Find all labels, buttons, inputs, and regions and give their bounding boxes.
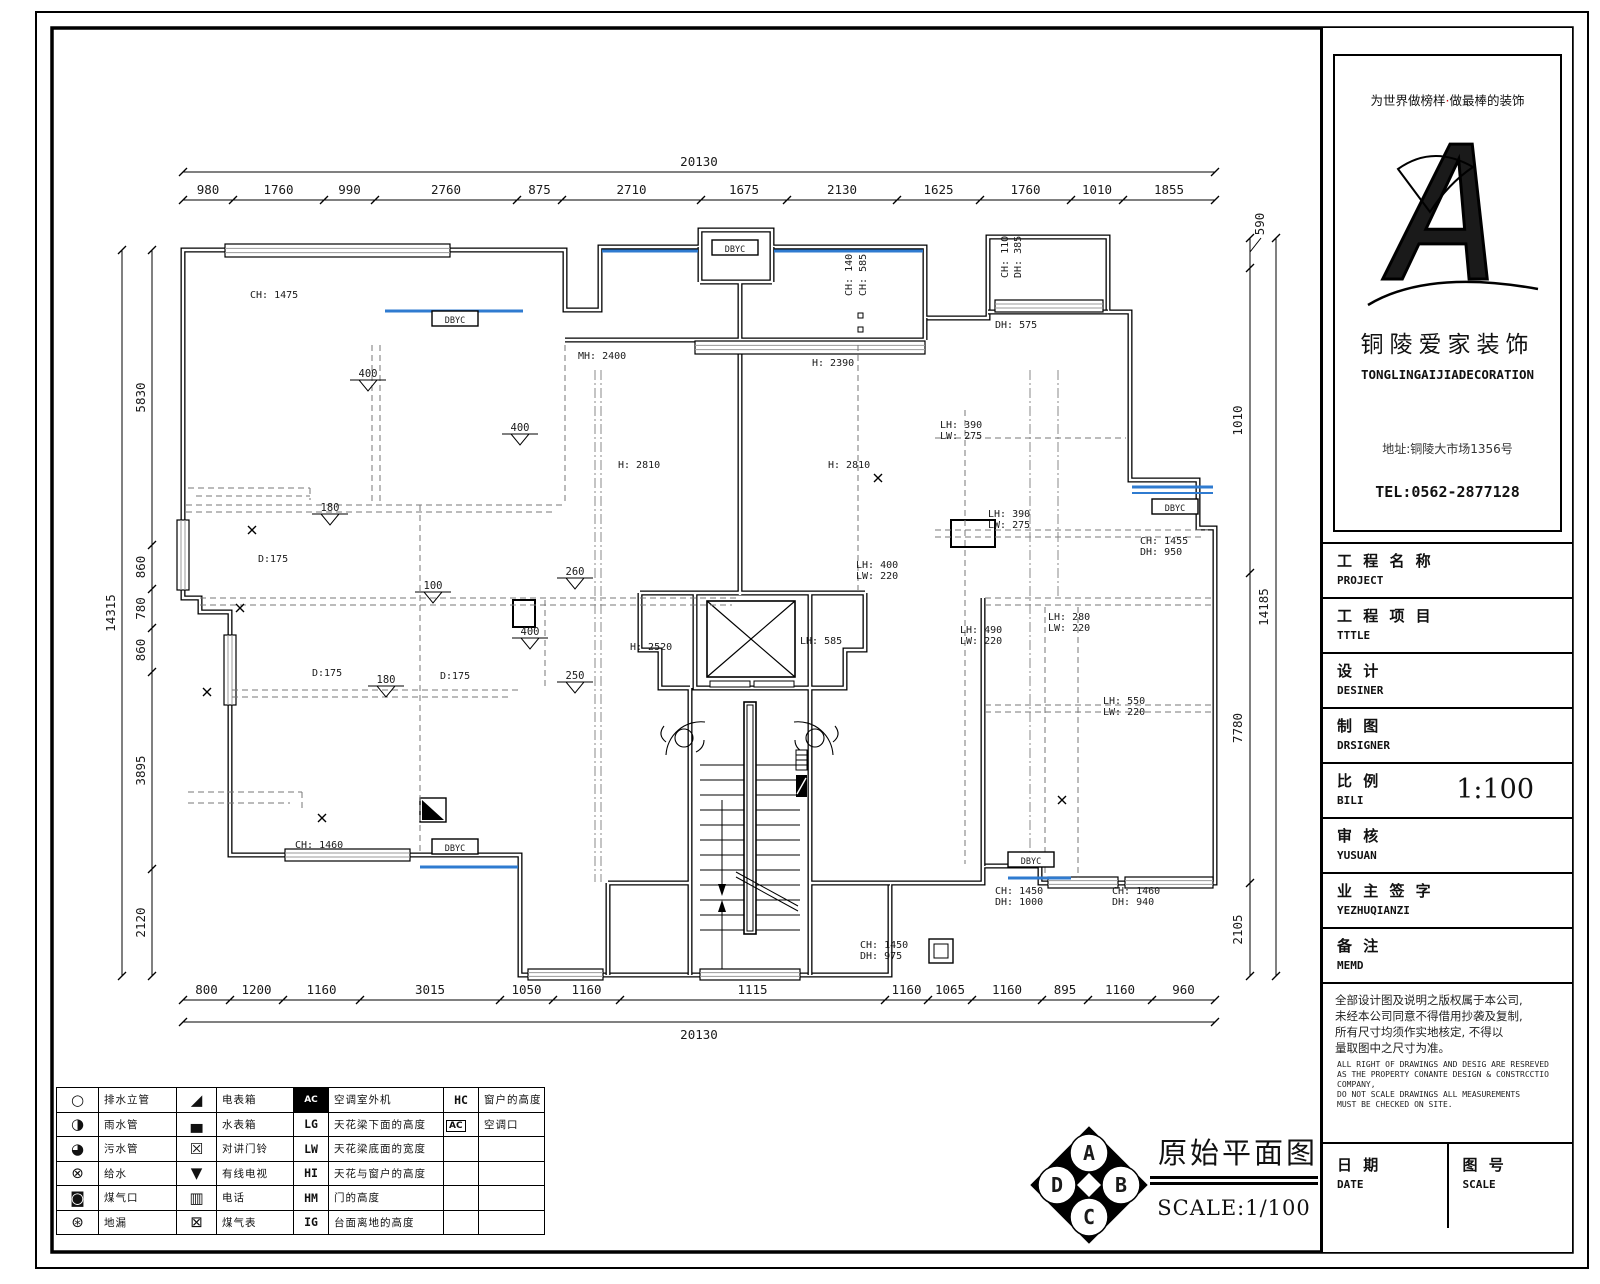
window-symbol: [224, 635, 236, 705]
drawing-scale: SCALE:1/100: [1146, 1196, 1322, 1220]
dim-value: 20130: [680, 154, 718, 169]
title-block-rows: 工 程 名 称 PROJECT 工 程 项 目 TTTLE 设 计 DESINE…: [1323, 542, 1572, 982]
legend-label: 窗户的高度: [479, 1088, 545, 1113]
field-project-name: 工 程 名 称 PROJECT: [1323, 542, 1572, 597]
dim-value: 1760: [1010, 182, 1040, 197]
field-label-en: DATE: [1337, 1178, 1447, 1191]
beam-label: LW: 275: [940, 431, 982, 442]
field-label-cn: 比 例: [1337, 770, 1572, 791]
beam-label: LH: 280: [1048, 612, 1090, 623]
dim-value: 860: [133, 639, 148, 662]
dim-value: 875: [528, 182, 551, 197]
field-label-cn: 图 号: [1463, 1154, 1573, 1175]
company-name-cn: 铜陵爱家装饰: [1335, 325, 1560, 359]
dim-value: 3895: [133, 755, 148, 785]
legend-label: 天花梁底面的宽度: [329, 1137, 444, 1162]
dim-leader: [1250, 238, 1261, 252]
legend-symbol: HI: [294, 1161, 329, 1186]
legend-label: 天花与窗户的高度: [329, 1161, 444, 1186]
beam-label: LH: 400: [856, 560, 898, 571]
note-line-en: ALL RIGHT OF DRAWINGS AND DESIG ARE RESR…: [1337, 1060, 1568, 1070]
dim-value: 1065: [935, 982, 965, 997]
staircase: [700, 702, 800, 973]
legend-label: 门的高度: [329, 1186, 444, 1211]
company-logo-icon: A: [1338, 109, 1558, 319]
window-symbol: [700, 969, 800, 980]
legend-label: [479, 1186, 545, 1211]
dim-value: 1760: [263, 182, 293, 197]
window-symbol: [528, 969, 603, 980]
rotated-label: CH: 585: [858, 254, 869, 296]
level-value: 100: [424, 580, 443, 592]
dim-value: 1855: [1154, 182, 1184, 197]
legend-grid: ○排水立管◢电表箱AC空调室外机HC窗户的高度◑雨水管▄水表箱LG天花梁下面的高…: [56, 1087, 545, 1235]
legend-symbol: ◕: [57, 1137, 99, 1162]
dim-value: 1050: [511, 982, 541, 997]
title-underline: [1150, 1176, 1318, 1185]
company-header: 为世界做榜样·做最棒的装饰 A 铜陵爱家装饰 TONGLINGAIJIADECO…: [1333, 54, 1562, 532]
date-sheet-row: 日 期 DATE 图 号 SCALE: [1323, 1142, 1572, 1228]
beam-label: LW: 220: [1103, 707, 1145, 718]
legend-label: 空调室外机: [329, 1088, 444, 1113]
window-label: CH: 1460: [1112, 886, 1160, 897]
note-line-cn: 全部设计图及说明之版权属于本公司,: [1335, 992, 1568, 1008]
legend-symbol: [444, 1186, 479, 1211]
legend-label: 天花梁下面的高度: [329, 1112, 444, 1137]
field-label-cn: 审 核: [1337, 825, 1572, 846]
window-tag-text: DBYC: [445, 316, 465, 326]
rotated-label: CH: 140: [844, 254, 855, 296]
field-label-en: MEMD: [1337, 959, 1572, 972]
rotated-label: DH: 385: [1013, 236, 1024, 278]
legend-label: 煤气口: [99, 1186, 177, 1211]
dim-value: 1160: [571, 982, 601, 997]
room-label: CH: 1475: [250, 290, 298, 301]
field-label-en: YEZHUQIANZI: [1337, 904, 1572, 917]
legend-symbol: ○: [57, 1088, 99, 1113]
note-line-cn: 量取图中之尺寸为准。: [1335, 1040, 1568, 1056]
dim-value: 14315: [103, 594, 118, 632]
note-line-cn: 所有尺寸均须作实地核定, 不得以: [1335, 1024, 1568, 1040]
floor-plan: 400400180100400260250180 DBYCDBYCDBYCDBY…: [177, 230, 1261, 980]
room-label: H: 2520: [630, 642, 672, 653]
drawing-title: 原始平面图: [1156, 1130, 1320, 1172]
legend-symbol: ▼: [177, 1161, 217, 1186]
dim-chain: 583086078086038952120: [133, 246, 156, 980]
rotated-label: CH: 110: [1000, 236, 1011, 278]
orientation-compass: A B C D: [1022, 1118, 1156, 1252]
field-label-en: YUSUAN: [1337, 849, 1572, 862]
window-label: DH: 940: [1112, 897, 1154, 908]
company-phone: TEL:0562-2877128: [1335, 483, 1560, 501]
window-tag-text: DBYC: [1165, 504, 1185, 514]
legend-symbol: ⊛: [57, 1210, 99, 1235]
field-sheet-number: 图 号 SCALE: [1447, 1144, 1573, 1228]
level-value: 400: [359, 368, 378, 380]
dim-value: 2120: [133, 907, 148, 937]
dim-chain: 8001200116030151050116011151160106511608…: [179, 982, 1219, 1004]
field-scale-ratio: 比 例 BILI 1:100: [1323, 762, 1572, 817]
window-label: CH: 1450: [860, 940, 908, 951]
level-triangle-icon: [321, 514, 339, 525]
legend-symbol: [444, 1161, 479, 1186]
room-label: D:175: [258, 554, 288, 565]
dim-value: 590: [1252, 213, 1267, 236]
level-value: 180: [377, 674, 396, 686]
level-triangle-icon: [377, 686, 395, 697]
dim-value: 3015: [415, 982, 445, 997]
legend-symbol: [444, 1137, 479, 1162]
dim-value: 800: [195, 982, 218, 997]
dim-chain: 9801760990276087527101675213016251760101…: [179, 182, 1219, 204]
dim-value: 2130: [827, 182, 857, 197]
legend-symbol: AC: [444, 1112, 479, 1137]
dim-value: 780: [133, 597, 148, 620]
notes-chinese: 全部设计图及说明之版权属于本公司,未经本公司同意不得借用抄袭及复制,所有尺寸均须…: [1335, 992, 1568, 1056]
slogan-left: 为世界做榜样: [1370, 93, 1445, 108]
beam-label: LH: 390: [988, 509, 1030, 520]
legend-symbol: LW: [294, 1137, 329, 1162]
level-value: 400: [511, 422, 530, 434]
dim-value: 7780: [1230, 713, 1245, 743]
note-line-en: MUST BE CHECKED ON SITE.: [1337, 1100, 1568, 1110]
note-line-cn: 未经本公司同意不得借用抄袭及复制,: [1335, 1008, 1568, 1024]
compass-letter-a: A: [1083, 1141, 1095, 1165]
legend-label: 有线电视: [217, 1161, 294, 1186]
column: [513, 600, 535, 627]
legend-label: 雨水管: [99, 1112, 177, 1137]
field-label-cn: 设 计: [1337, 660, 1572, 681]
legend-label: 给水: [99, 1161, 177, 1186]
level-triangle-icon: [521, 638, 539, 649]
field-auditor: 审 核 YUSUAN: [1323, 817, 1572, 872]
legend-symbol: ◙: [57, 1186, 99, 1211]
beam-label: LH: 585: [800, 636, 842, 647]
legend-row: ⊗给水▼有线电视HI天花与窗户的高度: [57, 1161, 545, 1186]
legend-symbol: ◢: [177, 1088, 217, 1113]
legend-label: 台面离地的高度: [329, 1210, 444, 1235]
window-symbol: [225, 244, 450, 257]
legend-row: ◑雨水管▄水表箱LG天花梁下面的高度AC空调口: [57, 1112, 545, 1137]
dim-value: 2760: [431, 182, 461, 197]
company-slogan: 为世界做榜样·做最棒的装饰: [1335, 90, 1560, 109]
room-label: MH: 2400: [578, 351, 626, 362]
legend-label: 排水立管: [99, 1088, 177, 1113]
dim-value: 2105: [1230, 914, 1245, 944]
field-label-cn: 制 图: [1337, 715, 1572, 736]
window-tags: DBYCDBYCDBYCDBYCDBYC: [432, 240, 1198, 867]
company-address: 地址:铜陵大市场1356号: [1335, 440, 1560, 457]
dim-value: 1625: [923, 182, 953, 197]
stair-arrow-down: [718, 884, 726, 896]
field-label-cn: 备 注: [1337, 935, 1572, 956]
beam-label: LW: 220: [960, 636, 1002, 647]
level-value: 250: [566, 670, 585, 682]
elevator-shaft: [707, 601, 795, 687]
legend-row: ⊛地漏⊠煤气表IG台面离地的高度: [57, 1210, 545, 1235]
field-drafter: 制 图 DRSIGNER: [1323, 707, 1572, 762]
copyright-notes: 全部设计图及说明之版权属于本公司,未经本公司同意不得借用抄袭及复制,所有尺寸均须…: [1323, 982, 1572, 1142]
dim-value: 1160: [1105, 982, 1135, 997]
legend-symbol: ◑: [57, 1112, 99, 1137]
window-tag-text: DBYC: [445, 844, 465, 854]
room-label: DH: 575: [995, 320, 1037, 331]
dim-chain: 20130: [179, 154, 1219, 176]
field-project-title: 工 程 项 目 TTTLE: [1323, 597, 1572, 652]
legend-table: ○排水立管◢电表箱AC空调室外机HC窗户的高度◑雨水管▄水表箱LG天花梁下面的高…: [56, 1087, 545, 1235]
level-markers: 400400180100400260250180: [312, 368, 593, 697]
beam-label: LH: 550: [1103, 696, 1145, 707]
legend-symbol: LG: [294, 1112, 329, 1137]
legend-symbol: ▥: [177, 1186, 217, 1211]
room-label: H: 2390: [812, 358, 854, 369]
field-label-en: TTTLE: [1337, 629, 1572, 642]
legend-label: [479, 1210, 545, 1235]
notes-english: ALL RIGHT OF DRAWINGS AND DESIG ARE RESR…: [1335, 1060, 1568, 1110]
beam-label: LW: 275: [988, 520, 1030, 531]
compass-letter-b: B: [1115, 1173, 1127, 1197]
svg-text:A: A: [1382, 109, 1503, 319]
window-label: DH: 950: [1140, 547, 1182, 558]
level-value: 400: [521, 626, 540, 638]
dim-value: 2710: [616, 182, 646, 197]
beam-label: LH: 390: [940, 420, 982, 431]
legend-symbol: IG: [294, 1210, 329, 1235]
field-label-cn: 工 程 项 目: [1337, 605, 1572, 626]
level-triangle-icon: [511, 434, 529, 445]
title-block-panel: 为世界做榜样·做最棒的装饰 A 铜陵爱家装饰 TONGLINGAIJIADECO…: [1320, 28, 1572, 1252]
legend-label: 污水管: [99, 1137, 177, 1162]
drawing-sheet: { "brand": { "slogan_a": "为世界做榜样", "slog…: [0, 0, 1600, 1280]
legend-label: 对讲门铃: [217, 1137, 294, 1162]
legend-row: ○排水立管◢电表箱AC空调室外机HC窗户的高度: [57, 1088, 545, 1113]
legend-symbol: ⊗: [57, 1161, 99, 1186]
dim-value: 20130: [680, 1027, 718, 1042]
legend-symbol: [444, 1210, 479, 1235]
dim-value: 1675: [729, 182, 759, 197]
legend-label: 电话: [217, 1186, 294, 1211]
dim-value: 1160: [306, 982, 336, 997]
field-label-en: DRSIGNER: [1337, 739, 1572, 752]
level-value: 180: [321, 502, 340, 514]
dim-value: 1160: [891, 982, 921, 997]
beam-label: LW: 220: [856, 571, 898, 582]
room-label: H: 2810: [828, 460, 870, 471]
legend-symbol: HM: [294, 1186, 329, 1211]
room-label: D:175: [440, 671, 470, 682]
legend-label: 地漏: [99, 1210, 177, 1235]
dim-value: 1160: [992, 982, 1022, 997]
level-triangle-icon: [566, 682, 584, 693]
legend-symbol: HC: [444, 1088, 479, 1113]
dim-value: 1010: [1082, 182, 1112, 197]
beam-label: LH: 490: [960, 625, 1002, 636]
field-label-cn: 业 主 签 字: [1337, 880, 1572, 901]
window-label: DH: 975: [860, 951, 902, 962]
legend-label: 空调口: [479, 1112, 545, 1137]
dim-value: 960: [1172, 982, 1195, 997]
legend-label: [479, 1137, 545, 1162]
level-triangle-icon: [566, 578, 584, 589]
note-line-en: COMPANY,: [1337, 1080, 1568, 1090]
compass-letter-d: D: [1051, 1173, 1063, 1197]
dim-value: 980: [197, 182, 220, 197]
level-value: 260: [566, 566, 585, 578]
field-owner-signature: 业 主 签 字 YEZHUQIANZI: [1323, 872, 1572, 927]
legend-symbol: ⊠: [177, 1210, 217, 1235]
dim-value: 1115: [737, 982, 767, 997]
dim-value: 1010: [1230, 405, 1245, 435]
window-tag-text: DBYC: [1021, 857, 1041, 867]
beam-label: LW: 220: [1048, 623, 1090, 634]
note-line-en: AS THE PROPERTY CONANTE DESIGN & CONSTRC…: [1337, 1070, 1568, 1080]
window-label: CH: 1460: [295, 840, 343, 851]
window-symbol: [177, 520, 189, 590]
legend-symbol: AC: [294, 1088, 329, 1113]
field-label-cn: 日 期: [1337, 1154, 1447, 1175]
legend-row: ◕污水管☒对讲门铃LW天花梁底面的宽度: [57, 1137, 545, 1162]
dim-value: 990: [338, 182, 361, 197]
window-symbol: [995, 300, 1103, 312]
level-triangle-icon: [359, 380, 377, 391]
window-label: CH: 1450: [995, 886, 1043, 897]
legend-row: ◙煤气口▥电话HM门的高度: [57, 1186, 545, 1211]
dim-value: 14185: [1256, 588, 1271, 626]
dim-chain: 14315: [103, 246, 126, 980]
legend-label: 煤气表: [217, 1210, 294, 1235]
field-label-en: BILI: [1337, 794, 1572, 807]
compass-letter-c: C: [1083, 1205, 1095, 1229]
legend-symbol: ☒: [177, 1137, 217, 1162]
legend-label: [479, 1161, 545, 1186]
field-memo: 备 注 MEMD: [1323, 927, 1572, 982]
room-label: H: 2810: [618, 460, 660, 471]
legend-label: 电表箱: [217, 1088, 294, 1113]
field-label-cn: 工 程 名 称: [1337, 550, 1572, 571]
field-label-en: SCALE: [1463, 1178, 1573, 1191]
company-name-en: TONGLINGAIJIADECORATION: [1335, 367, 1560, 382]
room-label: D:175: [312, 668, 342, 679]
dim-value: 5830: [133, 382, 148, 412]
dim-value: 1200: [241, 982, 271, 997]
dim-value: 860: [133, 556, 148, 579]
legend-symbol: ▄: [177, 1112, 217, 1137]
scale-ratio-value: 1:100: [1456, 774, 1534, 805]
window-label: DH: 1000: [995, 897, 1043, 908]
field-label-en: DESINER: [1337, 684, 1572, 697]
window-tag-text: DBYC: [725, 245, 745, 255]
field-date: 日 期 DATE: [1323, 1144, 1447, 1228]
dim-chain: 20130: [179, 1018, 1219, 1042]
window-label: CH: 1455: [1140, 536, 1188, 547]
dim-value: 895: [1054, 982, 1077, 997]
field-label-en: PROJECT: [1337, 574, 1572, 587]
window-symbol: [695, 341, 925, 354]
dim-chain: 14185: [1256, 234, 1280, 980]
field-designer: 设 计 DESINER: [1323, 652, 1572, 707]
note-line-en: DO NOT SCALE DRAWINGS ALL MEASUREMENTS: [1337, 1090, 1568, 1100]
stair-arrow-up: [718, 900, 726, 912]
legend-label: 水表箱: [217, 1112, 294, 1137]
slogan-right: 做最棒的装饰: [1449, 93, 1524, 108]
